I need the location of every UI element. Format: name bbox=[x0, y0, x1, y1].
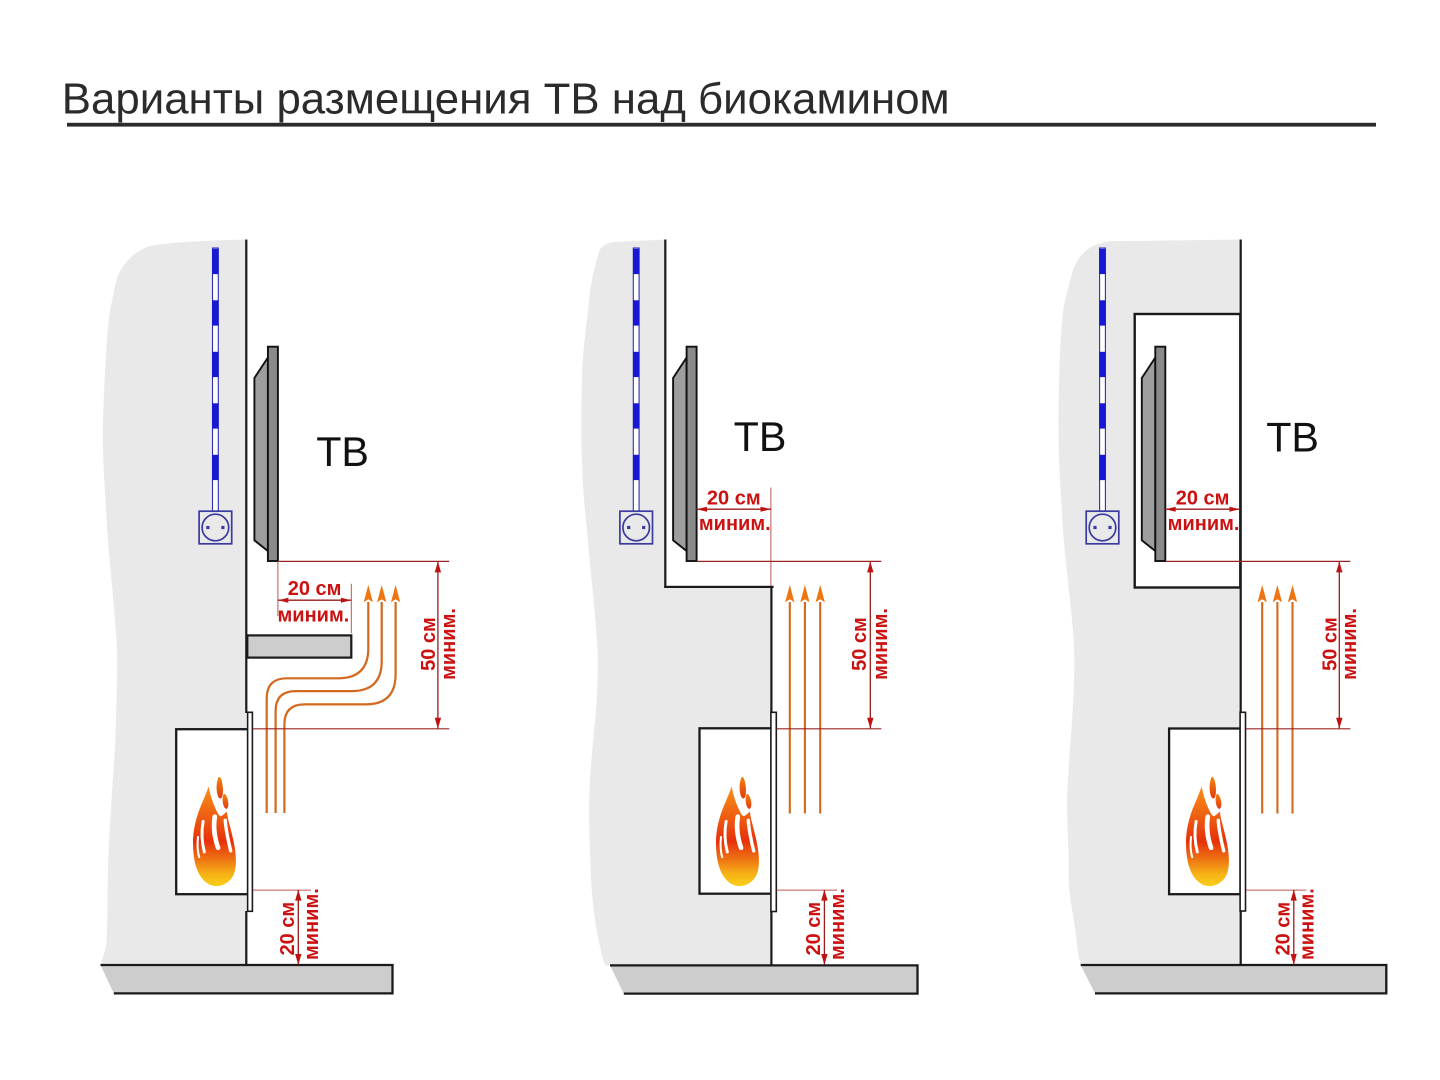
svg-text:ТВ: ТВ bbox=[316, 429, 369, 475]
svg-text:20 см: 20 см bbox=[1176, 487, 1230, 509]
svg-text:миним.: миним. bbox=[277, 605, 349, 627]
svg-text:20 см: 20 см bbox=[1272, 902, 1294, 956]
svg-text:ТВ: ТВ bbox=[734, 414, 787, 460]
svg-text:20 см: 20 см bbox=[803, 902, 825, 956]
svg-text:миним.: миним. bbox=[827, 888, 849, 960]
svg-text:50 см: 50 см bbox=[849, 617, 871, 671]
svg-text:миним.: миним. bbox=[1296, 888, 1318, 960]
svg-text:миним.: миним. bbox=[699, 513, 771, 535]
svg-text:20 см: 20 см bbox=[277, 902, 299, 956]
svg-text:миним.: миним. bbox=[1168, 513, 1240, 535]
svg-text:Варианты размещения ТВ над био: Варианты размещения ТВ над биокамином bbox=[62, 75, 950, 124]
svg-text:миним.: миним. bbox=[870, 608, 892, 680]
svg-text:50 см: 50 см bbox=[1319, 617, 1341, 671]
svg-text:50 см: 50 см bbox=[418, 617, 440, 671]
svg-text:миним.: миним. bbox=[438, 608, 460, 680]
svg-text:ТВ: ТВ bbox=[1266, 415, 1319, 461]
svg-text:20 см: 20 см bbox=[707, 487, 761, 509]
svg-text:20 см: 20 см bbox=[288, 578, 342, 600]
svg-text:миним.: миним. bbox=[1339, 608, 1361, 680]
svg-text:миним.: миним. bbox=[301, 888, 323, 960]
